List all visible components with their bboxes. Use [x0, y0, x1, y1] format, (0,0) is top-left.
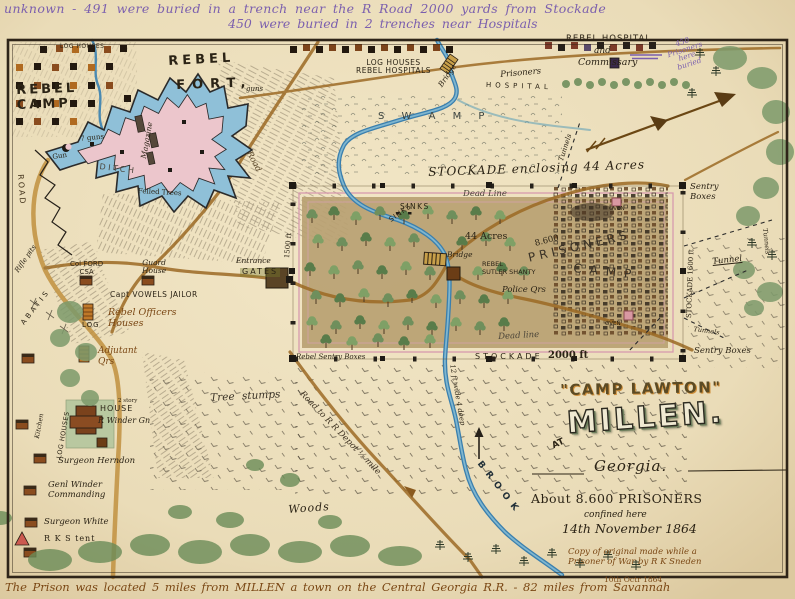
label-tunnels-edge: Tunnels	[761, 228, 771, 255]
label-stockade-south: STOCKADE	[475, 353, 543, 362]
label-col-ford: Col FORD CSA	[70, 261, 103, 276]
label-capt-vowels-jailor: Capt VOWELS JAILOR	[110, 291, 198, 299]
label-sutler-shanty: REBEL SUTLER SHANTY	[482, 261, 535, 277]
label-rebel-hospital: REBEL HOSPITAL	[566, 35, 651, 44]
label-rebel-camp: REBEL CAMP	[16, 82, 78, 114]
label-entrance: Entrance	[236, 257, 271, 265]
margin-note-bottom: The Prison was located 5 miles from MILL…	[5, 581, 670, 593]
label-and: and	[594, 47, 611, 57]
label-oven-1: OVEN	[609, 207, 625, 213]
label-sentry-boxes-ne: Sentry Boxes	[690, 182, 719, 202]
title-about-prisoners: About 8.600 PRISONERS	[531, 492, 702, 506]
label-sentry-boxes-se: Sentry Boxes	[694, 347, 751, 356]
label-surgeon-herndon: Surgeon Herndon	[58, 457, 135, 466]
label-log-houses-nw: LOG HOUSES	[60, 44, 104, 50]
label-commissary: Commissary	[578, 58, 637, 68]
title-camp-lawton: "CAMP LAWTON"	[560, 379, 722, 398]
label-fort: FORT,	[176, 76, 253, 93]
label-oven-2: OVEN	[605, 322, 621, 328]
map-drawing	[0, 0, 795, 599]
label-genl-winder: Genl Winder Commanding	[48, 481, 105, 501]
camp-lawton-map: unknown - 491 were buried in a trench ne…	[0, 0, 795, 599]
label-2000ft: 2000 ft	[548, 351, 588, 362]
title-credit-1: Copy of original made while a	[568, 548, 697, 557]
label-house: HOUSE	[100, 405, 133, 414]
label-rebel-officers-houses: Rebel Officers Houses	[108, 308, 176, 330]
label-guard-house: Guard House	[142, 259, 166, 275]
label-guns: guns	[246, 86, 263, 94]
title-date: 14th November 1864	[562, 522, 697, 536]
label-road-left: ROAD	[15, 174, 26, 206]
title-credit-2: Prisoner of War by R K Sneden	[568, 558, 701, 567]
label-r-winder: R Winder Gn	[98, 417, 150, 426]
label-44-acres: 44 Acres	[465, 232, 507, 242]
label-rebel-sentry-boxes: Rebel Sentry Boxes	[296, 354, 365, 362]
label-swamp: S W A M P	[378, 112, 491, 123]
label-adjutant-qrs: Adjutant Qrs	[98, 346, 137, 368]
bridge-icon-camp	[424, 252, 447, 266]
label-log: LOG	[82, 322, 100, 330]
label-rks-tent: R K S tent	[44, 535, 95, 544]
date-note: 10th Octr 1864	[604, 576, 662, 584]
label-log-houses-hospitals: LOG HOUSES REBEL HOSPITALS	[356, 59, 431, 75]
title-georgia: Georgia.	[594, 458, 667, 474]
title-confined-here: confined here	[584, 511, 647, 521]
label-surgeon-white: Surgeon White	[44, 518, 109, 527]
label-dead-line-top: Dead Line	[463, 190, 507, 199]
label-gates: GATES	[240, 268, 280, 277]
margin-note-top-2: 450 were buried in 2 trenches near Hospi…	[228, 17, 537, 31]
label-bridge-camp: Bridge	[447, 251, 473, 259]
label-police-qrs: Police Qrs	[502, 286, 546, 295]
margin-note-top-1: unknown - 491 were buried in a trench ne…	[4, 2, 606, 16]
